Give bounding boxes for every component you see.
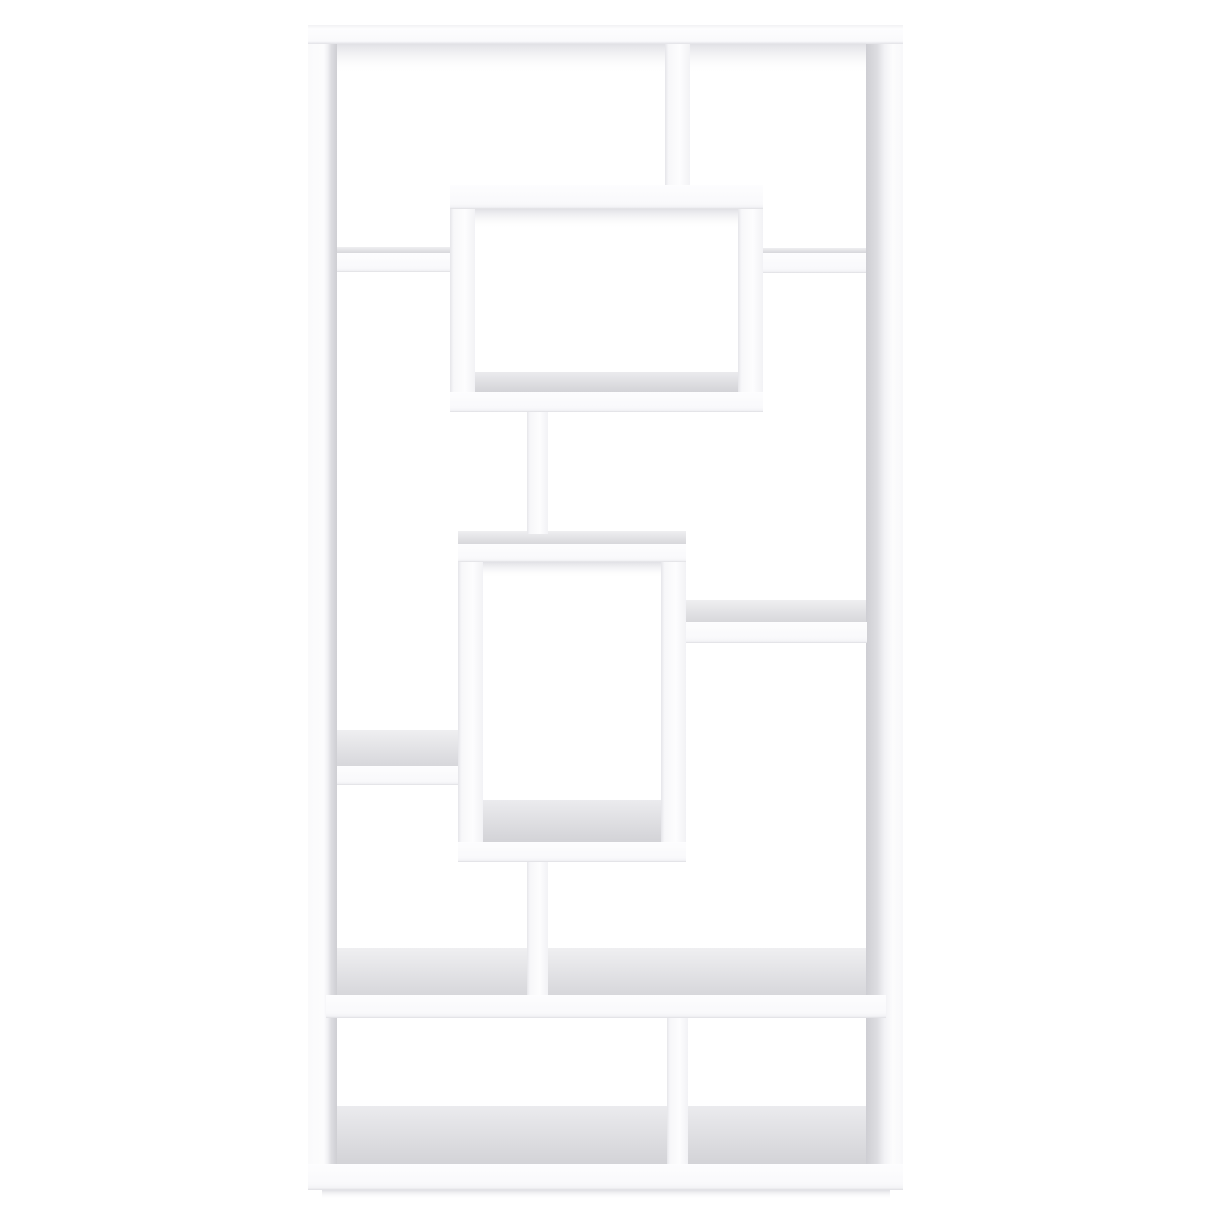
lower-box-top-board [458, 544, 686, 562]
left-shelf1-top-surface [337, 247, 450, 253]
upper-box-bottom-board [450, 392, 763, 412]
bottom-floor-surface [337, 1106, 866, 1164]
upper-box-left-wall [450, 209, 475, 392]
left-shelf-1 [337, 253, 450, 272]
lower-box-bottom-board [458, 842, 686, 862]
center-stem-lower [527, 862, 548, 1000]
top-divider [665, 44, 690, 190]
plinth-ground-shadow [322, 1190, 890, 1199]
right-shelf-1 [763, 253, 866, 273]
bottom-plinth [308, 1164, 903, 1190]
upper-box-top-board [450, 185, 763, 209]
top-board [308, 25, 903, 44]
bookcase-svg [0, 0, 1214, 1214]
lower-box-right-wall [661, 562, 686, 842]
full-width-shelf [326, 995, 886, 1018]
lower-box-floor-surface [483, 800, 661, 842]
right-shelf1-top-surface [763, 248, 866, 253]
left-shelf-2 [337, 766, 458, 785]
background [0, 0, 1214, 1214]
center-stem-upper [527, 412, 548, 534]
big-shelf-top-surface [337, 948, 866, 995]
upper-box-floor-surface [475, 372, 738, 392]
lower-box-top-surface [458, 531, 686, 544]
lower-box-left-wall [458, 562, 483, 842]
top-opening-ceiling-shadow [337, 44, 866, 74]
left-shelf2-top-surface [337, 730, 458, 766]
upper-box-right-wall [738, 209, 763, 392]
mid-right-shelf-top-surface [686, 600, 867, 622]
bottom-divider [667, 1018, 688, 1167]
bookcase-product-photo [0, 0, 1214, 1214]
mid-right-shelf [686, 622, 867, 643]
lower-box-ceiling-shadow [483, 562, 661, 578]
upper-box-ceiling-shadow [475, 209, 738, 229]
